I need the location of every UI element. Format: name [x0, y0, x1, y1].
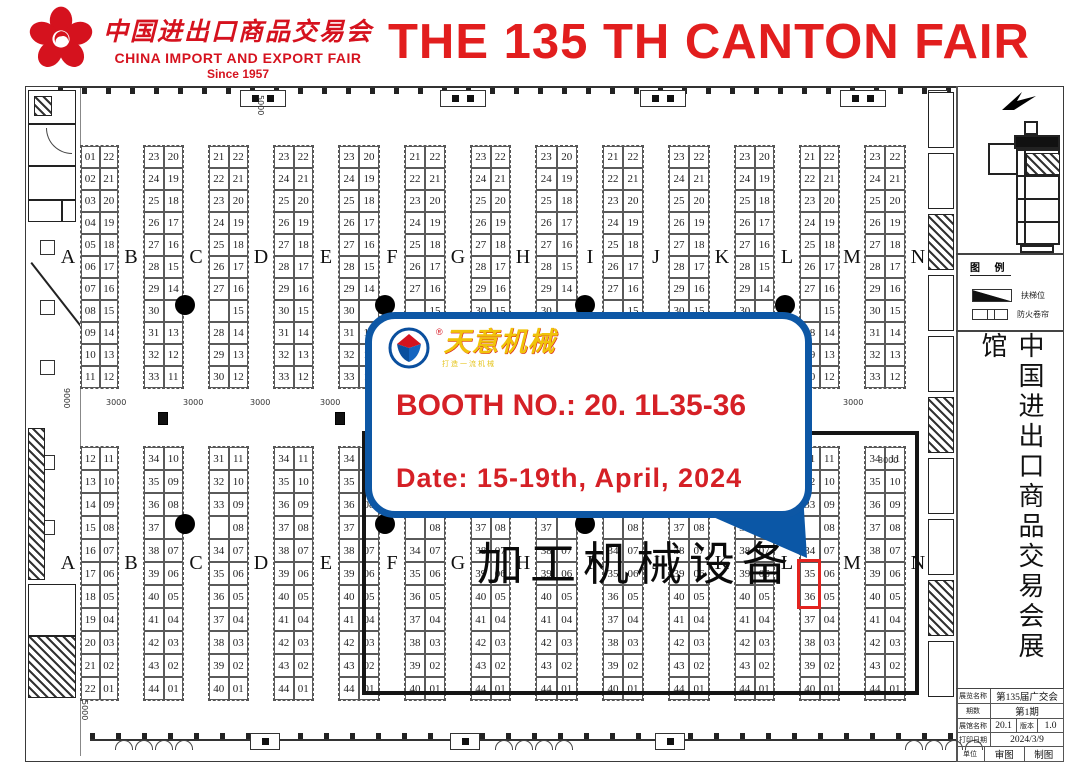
booth-cell[interactable]: 20	[81, 631, 100, 654]
booth-cell[interactable]: 18	[820, 234, 840, 256]
booth-cell[interactable]: 03	[229, 631, 249, 654]
booth-cell[interactable]: 12	[294, 366, 314, 388]
booth-cell[interactable]: 34	[339, 447, 359, 470]
booth-cell[interactable]: 42	[144, 631, 164, 654]
booth-cell[interactable]: 20	[359, 146, 379, 168]
booth-cell[interactable]: 03	[164, 631, 184, 654]
booth-cell[interactable]: 32	[339, 344, 359, 366]
booth-cell[interactable]: 17	[425, 256, 445, 278]
booth-cell[interactable]: 36	[144, 493, 164, 516]
booth-cell[interactable]: 29	[274, 278, 294, 300]
booth-cell[interactable]: 12	[885, 366, 905, 388]
booth-cell[interactable]: 39	[209, 654, 229, 677]
booth-cell[interactable]: 18	[557, 190, 578, 212]
booth-cell[interactable]: 10	[81, 344, 100, 366]
booth-cell[interactable]: 23	[471, 146, 491, 168]
booth-cell[interactable]: 17	[623, 256, 643, 278]
booth-cell[interactable]: 20	[885, 190, 905, 212]
booth-cell[interactable]: 22	[425, 146, 445, 168]
booth-cell[interactable]: 21	[820, 168, 840, 190]
booth-cell[interactable]: 23	[865, 146, 885, 168]
booth-cell[interactable]: 08	[229, 516, 249, 539]
booth-cell[interactable]: 14	[294, 322, 314, 344]
booth-cell[interactable]: 17	[885, 256, 905, 278]
booth-cell[interactable]: 44	[339, 677, 359, 700]
booth-cell[interactable]: 23	[536, 146, 557, 168]
booth-cell[interactable]: 08	[100, 516, 119, 539]
booth-cell[interactable]: 42	[339, 631, 359, 654]
booth-cell[interactable]: 15	[885, 300, 905, 322]
booth-cell[interactable]: 30	[865, 300, 885, 322]
booth-cell[interactable]: 15	[359, 256, 379, 278]
booth-cell[interactable]: 22	[800, 168, 820, 190]
booth-cell[interactable]: 16	[755, 234, 775, 256]
booth-cell[interactable]: 13	[81, 470, 100, 493]
booth-cell[interactable]: 22	[405, 168, 425, 190]
booth-cell[interactable]: 01	[100, 677, 119, 700]
booth-cell[interactable]: 30	[209, 366, 229, 388]
booth-cell[interactable]: 32	[209, 470, 229, 493]
booth-cell[interactable]: 14	[100, 322, 119, 344]
booth-cell[interactable]: 14	[885, 322, 905, 344]
booth-cell[interactable]: 27	[209, 278, 229, 300]
booth-cell[interactable]: 22	[623, 146, 643, 168]
booth-cell[interactable]: 14	[820, 322, 840, 344]
booth-cell[interactable]: 21	[689, 168, 709, 190]
booth-cell[interactable]: 41	[274, 608, 294, 631]
booth-cell[interactable]: 24	[405, 212, 425, 234]
booth-cell[interactable]: 04	[100, 608, 119, 631]
booth-cell[interactable]: 24	[603, 212, 623, 234]
booth-cell[interactable]: 39	[144, 562, 164, 585]
booth-cell[interactable]: 18	[229, 234, 249, 256]
booth-cell[interactable]: 15	[164, 256, 184, 278]
booth-cell[interactable]: 37	[274, 516, 294, 539]
booth-cell[interactable]: 02	[81, 168, 100, 190]
booth-cell[interactable]: 21	[603, 146, 623, 168]
booth-cell[interactable]: 15	[820, 300, 840, 322]
booth-cell[interactable]: 14	[557, 278, 578, 300]
booth-cell[interactable]: 22	[689, 146, 709, 168]
booth-cell[interactable]: 18	[164, 190, 184, 212]
booth-cell[interactable]: 20	[623, 190, 643, 212]
booth-cell[interactable]: 22	[81, 677, 100, 700]
booth-cell[interactable]: 16	[689, 278, 709, 300]
booth-cell[interactable]: 14	[229, 322, 249, 344]
booth-cell[interactable]: 26	[405, 256, 425, 278]
booth-cell[interactable]: 19	[623, 212, 643, 234]
booth-cell[interactable]	[800, 300, 820, 322]
booth-cell[interactable]: 13	[294, 344, 314, 366]
booth-cell[interactable]: 17	[81, 562, 100, 585]
booth-cell[interactable]: 35	[339, 470, 359, 493]
booth-callout[interactable]: ® 天意机械 打造一流机械 BOOTH NO.: 20. 1L35-36 Dat…	[365, 312, 812, 518]
booth-cell[interactable]: 28	[144, 256, 164, 278]
booth-cell[interactable]: 26	[735, 212, 755, 234]
booth-cell[interactable]: 04	[229, 608, 249, 631]
booth-cell[interactable]: 26	[209, 256, 229, 278]
booth-cell[interactable]: 21	[294, 168, 314, 190]
booth-cell[interactable]: 27	[339, 234, 359, 256]
booth-cell[interactable]: 06	[164, 562, 184, 585]
booth-cell[interactable]: 17	[164, 212, 184, 234]
booth-cell[interactable]: 22	[100, 146, 119, 168]
booth-cell[interactable]: 22	[603, 168, 623, 190]
booth-cell[interactable]: 10	[294, 470, 314, 493]
booth-cell[interactable]: 23	[339, 146, 359, 168]
booth-cell[interactable]: 38	[339, 539, 359, 562]
booth-cell[interactable]: 31	[339, 322, 359, 344]
booth-cell[interactable]: 08	[81, 300, 100, 322]
booth-cell[interactable]: 09	[164, 470, 184, 493]
booth-cell[interactable]: 41	[339, 608, 359, 631]
booth-cell[interactable]: 07	[164, 539, 184, 562]
booth-cell[interactable]: 23	[735, 146, 755, 168]
booth-cell[interactable]: 27	[274, 234, 294, 256]
booth-cell[interactable]: 05	[81, 234, 100, 256]
booth-cell[interactable]: 25	[603, 234, 623, 256]
booth-cell[interactable]: 16	[491, 278, 511, 300]
booth-cell[interactable]: 12	[229, 366, 249, 388]
booth-cell[interactable]: 16	[623, 278, 643, 300]
booth-cell[interactable]: 19	[820, 212, 840, 234]
booth-cell[interactable]: 37	[144, 516, 164, 539]
booth-cell[interactable]: 18	[294, 234, 314, 256]
booth-cell[interactable]: 27	[669, 234, 689, 256]
booth-cell[interactable]: 15	[229, 300, 249, 322]
booth-cell[interactable]: 22	[229, 146, 249, 168]
booth-cell[interactable]: 20	[229, 190, 249, 212]
booth-cell[interactable]: 15	[100, 300, 119, 322]
booth-cell[interactable]: 02	[229, 654, 249, 677]
booth-cell[interactable]: 27	[405, 278, 425, 300]
booth-cell[interactable]: 34	[144, 447, 164, 470]
booth-cell[interactable]: 19	[557, 168, 578, 190]
booth-cell[interactable]: 38	[144, 539, 164, 562]
booth-cell[interactable]: 20	[425, 190, 445, 212]
booth-cell[interactable]: 33	[339, 366, 359, 388]
booth-cell[interactable]: 17	[100, 256, 119, 278]
booth-cell[interactable]: 27	[471, 234, 491, 256]
booth-cell[interactable]: 24	[536, 168, 557, 190]
booth-cell[interactable]: 21	[100, 168, 119, 190]
booth-cell[interactable]: 19	[425, 212, 445, 234]
booth-cell[interactable]: 28	[536, 256, 557, 278]
booth-cell[interactable]: 24	[669, 168, 689, 190]
booth-cell[interactable]: 28	[669, 256, 689, 278]
booth-cell[interactable]: 07	[294, 539, 314, 562]
booth-cell[interactable]: 40	[274, 585, 294, 608]
booth-cell[interactable]: 16	[164, 234, 184, 256]
booth-cell[interactable]: 24	[144, 168, 164, 190]
booth-cell[interactable]: 01	[229, 677, 249, 700]
booth-cell[interactable]	[209, 300, 229, 322]
booth-cell[interactable]: 09	[100, 493, 119, 516]
booth-cell[interactable]: 31	[865, 322, 885, 344]
booth-cell[interactable]: 24	[471, 168, 491, 190]
booth-cell[interactable]: 17	[755, 212, 775, 234]
booth-cell[interactable]: 18	[689, 234, 709, 256]
booth-cell[interactable]: 17	[557, 212, 578, 234]
booth-cell[interactable]: 21	[405, 146, 425, 168]
booth-cell[interactable]: 39	[274, 562, 294, 585]
booth-cell[interactable]: 05	[100, 585, 119, 608]
booth-cell[interactable]: 26	[274, 212, 294, 234]
booth-cell[interactable]: 33	[209, 493, 229, 516]
booth-cell[interactable]: 26	[603, 256, 623, 278]
booth-cell[interactable]: 14	[359, 278, 379, 300]
booth-cell[interactable]: 40	[144, 585, 164, 608]
booth-cell[interactable]: 17	[689, 256, 709, 278]
booth-cell[interactable]: 29	[536, 278, 557, 300]
booth-cell[interactable]: 14	[755, 278, 775, 300]
booth-cell[interactable]: 23	[209, 190, 229, 212]
booth-cell[interactable]: 14	[81, 493, 100, 516]
booth-cell[interactable]: 11	[100, 447, 119, 470]
booth-cell[interactable]: 12	[164, 344, 184, 366]
booth-cell[interactable]: 43	[144, 654, 164, 677]
booth-cell[interactable]: 29	[865, 278, 885, 300]
booth-cell[interactable]: 05	[164, 585, 184, 608]
booth-cell[interactable]: 07	[100, 539, 119, 562]
booth-cell[interactable]: 43	[274, 654, 294, 677]
booth-cell[interactable]: 19	[294, 212, 314, 234]
booth-cell[interactable]: 26	[536, 212, 557, 234]
booth-cell[interactable]: 21	[623, 168, 643, 190]
booth-cell[interactable]: 02	[100, 654, 119, 677]
booth-cell[interactable]: 28	[209, 322, 229, 344]
booth-cell[interactable]: 15	[755, 256, 775, 278]
booth-cell[interactable]: 16	[885, 278, 905, 300]
booth-cell[interactable]: 32	[865, 344, 885, 366]
booth-cell[interactable]: 19	[689, 212, 709, 234]
booth-cell[interactable]: 02	[164, 654, 184, 677]
booth-cell[interactable]: 22	[209, 168, 229, 190]
booth-cell[interactable]: 24	[865, 168, 885, 190]
booth-cell[interactable]: 22	[885, 146, 905, 168]
booth-cell[interactable]: 19	[885, 212, 905, 234]
booth-cell[interactable]: 19	[81, 608, 100, 631]
booth-cell[interactable]: 28	[735, 256, 755, 278]
booth-cell[interactable]: 25	[274, 190, 294, 212]
booth-cell[interactable]: 23	[144, 146, 164, 168]
booth-cell[interactable]: 09	[294, 493, 314, 516]
booth-cell[interactable]: 16	[229, 278, 249, 300]
booth-cell[interactable]: 06	[294, 562, 314, 585]
booth-cell[interactable]: 11	[164, 366, 184, 388]
booth-cell[interactable]: 24	[274, 168, 294, 190]
booth-cell[interactable]: 26	[669, 212, 689, 234]
booth-cell[interactable]: 36	[209, 585, 229, 608]
booth-cell[interactable]: 13	[100, 344, 119, 366]
booth-cell[interactable]: 18	[425, 234, 445, 256]
booth-cell[interactable]: 40	[339, 585, 359, 608]
booth-cell[interactable]: 19	[100, 212, 119, 234]
booth-cell[interactable]: 26	[471, 212, 491, 234]
booth-cell[interactable]: 25	[339, 190, 359, 212]
booth-cell[interactable]: 30	[339, 300, 359, 322]
booth-cell[interactable]: 04	[164, 608, 184, 631]
booth-cell[interactable]: 01	[294, 677, 314, 700]
booth-cell[interactable]: 28	[339, 256, 359, 278]
booth-cell[interactable]: 11	[81, 366, 100, 388]
booth-cell[interactable]: 16	[100, 278, 119, 300]
booth-cell[interactable]: 25	[735, 190, 755, 212]
booth-cell[interactable]: 05	[294, 585, 314, 608]
booth-cell[interactable]: 17	[229, 256, 249, 278]
booth-cell[interactable]: 25	[536, 190, 557, 212]
booth-cell[interactable]: 13	[164, 322, 184, 344]
booth-cell[interactable]: 24	[209, 212, 229, 234]
booth-cell[interactable]: 33	[274, 366, 294, 388]
booth-cell[interactable]: 18	[623, 234, 643, 256]
booth-cell[interactable]: 23	[800, 190, 820, 212]
booth-cell[interactable]: 22	[294, 146, 314, 168]
booth-cell[interactable]: 20	[491, 190, 511, 212]
booth-cell[interactable]: 29	[209, 344, 229, 366]
booth-cell[interactable]: 30	[274, 300, 294, 322]
booth-cell[interactable]: 22	[820, 146, 840, 168]
booth-cell[interactable]: 12	[81, 447, 100, 470]
booth-cell[interactable]: 37	[339, 516, 359, 539]
booth-cell[interactable]: 09	[81, 322, 100, 344]
booth-cell[interactable]: 21	[491, 168, 511, 190]
booth-cell[interactable]: 07	[229, 539, 249, 562]
booth-cell[interactable]: 21	[81, 654, 100, 677]
booth-cell[interactable]: 40	[209, 677, 229, 700]
booth-cell[interactable]: 08	[164, 493, 184, 516]
booth-cell[interactable]: 03	[294, 631, 314, 654]
booth-cell[interactable]: 27	[536, 234, 557, 256]
booth-cell[interactable]: 17	[294, 256, 314, 278]
booth-cell[interactable]: 10	[164, 447, 184, 470]
booth-cell[interactable]: 42	[274, 631, 294, 654]
booth-cell[interactable]: 21	[209, 146, 229, 168]
booth-cell[interactable]: 18	[755, 190, 775, 212]
booth-cell[interactable]: 10	[229, 470, 249, 493]
booth-cell[interactable]: 38	[209, 631, 229, 654]
booth-cell[interactable]: 26	[800, 256, 820, 278]
booth-cell[interactable]: 27	[735, 234, 755, 256]
booth-cell[interactable]: 21	[425, 168, 445, 190]
booth-cell[interactable]: 06	[81, 256, 100, 278]
highlighted-booth[interactable]	[797, 559, 821, 609]
booth-cell[interactable]: 24	[339, 168, 359, 190]
booth-cell[interactable]: 18	[81, 585, 100, 608]
booth-cell[interactable]: 25	[471, 190, 491, 212]
booth-cell[interactable]: 13	[229, 344, 249, 366]
booth-cell[interactable]: 26	[144, 212, 164, 234]
booth-cell[interactable]: 25	[800, 234, 820, 256]
booth-cell[interactable]: 35	[274, 470, 294, 493]
booth-cell[interactable]: 07	[81, 278, 100, 300]
booth-cell[interactable]: 34	[209, 539, 229, 562]
booth-cell[interactable]: 12	[100, 366, 119, 388]
booth-cell[interactable]: 41	[144, 608, 164, 631]
booth-cell[interactable]: 30	[144, 300, 164, 322]
booth-cell[interactable]: 27	[144, 234, 164, 256]
booth-cell[interactable]: 44	[274, 677, 294, 700]
booth-cell[interactable]: 26	[865, 212, 885, 234]
booth-cell[interactable]: 16	[294, 278, 314, 300]
booth-cell[interactable]: 20	[164, 146, 184, 168]
booth-cell[interactable]: 27	[800, 278, 820, 300]
booth-cell[interactable]: 15	[294, 300, 314, 322]
booth-cell[interactable]: 44	[144, 677, 164, 700]
booth-cell[interactable]: 01	[164, 677, 184, 700]
booth-cell[interactable]: 32	[274, 344, 294, 366]
booth-cell[interactable]: 27	[603, 278, 623, 300]
booth-cell[interactable]: 06	[100, 562, 119, 585]
booth-cell[interactable]: 28	[471, 256, 491, 278]
booth-cell[interactable]: 29	[735, 278, 755, 300]
booth-cell[interactable]: 36	[339, 493, 359, 516]
booth-cell[interactable]: 16	[359, 234, 379, 256]
booth-cell[interactable]: 38	[274, 539, 294, 562]
booth-cell[interactable]: 16	[425, 278, 445, 300]
booth-cell[interactable]: 35	[209, 562, 229, 585]
booth-cell[interactable]: 34	[274, 447, 294, 470]
booth-cell[interactable]: 18	[359, 190, 379, 212]
booth-cell[interactable]: 03	[81, 190, 100, 212]
booth-cell[interactable]	[209, 516, 229, 539]
booth-cell[interactable]: 12	[820, 366, 840, 388]
booth-cell[interactable]: 23	[274, 146, 294, 168]
booth-cell[interactable]: 29	[471, 278, 491, 300]
booth-cell[interactable]: 29	[339, 278, 359, 300]
booth-cell[interactable]: 23	[669, 146, 689, 168]
booth-cell[interactable]: 25	[405, 234, 425, 256]
booth-cell[interactable]: 02	[294, 654, 314, 677]
booth-cell[interactable]: 33	[144, 366, 164, 388]
booth-cell[interactable]: 19	[491, 212, 511, 234]
booth-cell[interactable]: 21	[229, 168, 249, 190]
booth-cell[interactable]: 19	[755, 168, 775, 190]
booth-cell[interactable]: 35	[144, 470, 164, 493]
booth-cell[interactable]: 03	[100, 631, 119, 654]
booth-cell[interactable]: 18	[885, 234, 905, 256]
booth-cell[interactable]: 29	[669, 278, 689, 300]
booth-cell[interactable]: 04	[81, 212, 100, 234]
booth-cell[interactable]: 20	[557, 146, 578, 168]
booth-cell[interactable]: 29	[144, 278, 164, 300]
booth-cell[interactable]: 31	[274, 322, 294, 344]
booth-cell[interactable]: 17	[359, 212, 379, 234]
booth-cell[interactable]: 36	[274, 493, 294, 516]
booth-cell[interactable]: 25	[144, 190, 164, 212]
booth-cell[interactable]: 17	[491, 256, 511, 278]
booth-cell[interactable]: 25	[209, 234, 229, 256]
booth-cell[interactable]: 21	[885, 168, 905, 190]
booth-cell[interactable]: 05	[229, 585, 249, 608]
booth-cell[interactable]: 20	[689, 190, 709, 212]
booth-cell[interactable]: 43	[339, 654, 359, 677]
booth-cell[interactable]: 31	[144, 322, 164, 344]
booth-cell[interactable]: 19	[229, 212, 249, 234]
booth-cell[interactable]: 24	[800, 212, 820, 234]
booth-cell[interactable]: 21	[800, 146, 820, 168]
booth-cell[interactable]: 08	[294, 516, 314, 539]
booth-cell[interactable]: 15	[81, 516, 100, 539]
booth-cell[interactable]: 18	[100, 234, 119, 256]
booth-cell[interactable]: 16	[557, 234, 578, 256]
booth-cell[interactable]: 19	[359, 168, 379, 190]
booth-cell[interactable]: 13	[820, 344, 840, 366]
booth-cell[interactable]: 28	[865, 256, 885, 278]
booth-cell[interactable]: 39	[339, 562, 359, 585]
booth-cell[interactable]: 15	[557, 256, 578, 278]
booth-cell[interactable]: 18	[491, 234, 511, 256]
